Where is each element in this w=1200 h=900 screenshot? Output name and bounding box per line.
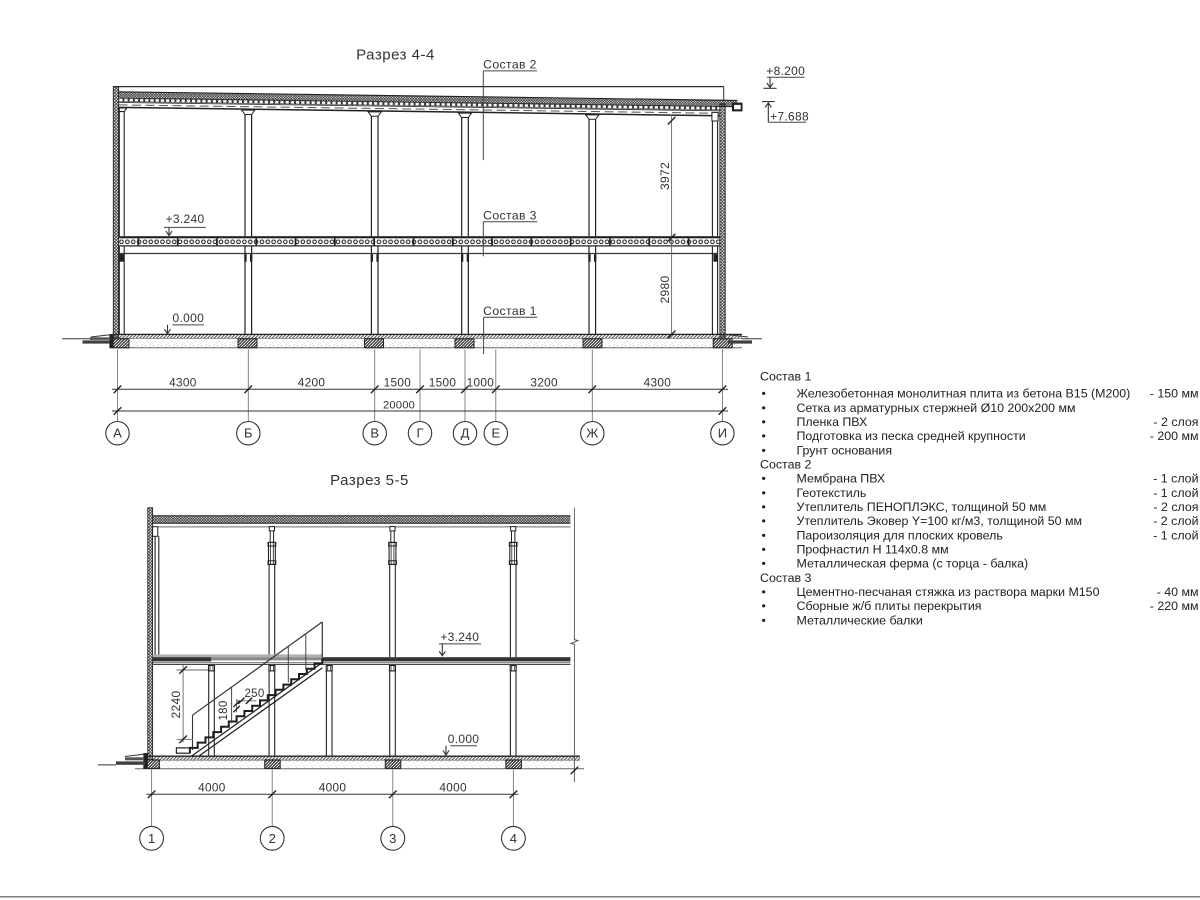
svg-text:•: • xyxy=(762,500,766,514)
svg-text:•: • xyxy=(762,585,766,599)
svg-text:3: 3 xyxy=(389,831,396,846)
svg-text:Цементно-песчаная стяжка из ра: Цементно-песчаная стяжка из раствора мар… xyxy=(797,585,1100,599)
svg-text:Утеплитель ПЕНОПЛЭКС, толщиной: Утеплитель ПЕНОПЛЭКС, толщиной 50 мм xyxy=(797,500,1047,514)
svg-text:•: • xyxy=(762,514,766,528)
svg-text:Железобетонная монолитная плит: Железобетонная монолитная плита из бетон… xyxy=(797,387,1131,401)
svg-text:Б: Б xyxy=(244,426,253,441)
svg-text:•: • xyxy=(762,401,766,415)
svg-text:•: • xyxy=(762,486,766,500)
svg-text:Состав 2: Состав 2 xyxy=(483,57,537,71)
svg-text:4200: 4200 xyxy=(298,376,326,390)
svg-text:•: • xyxy=(762,472,766,486)
svg-text:Мембрана ПВХ: Мембрана ПВХ xyxy=(797,472,886,486)
svg-text:•: • xyxy=(762,387,766,401)
svg-text:1500: 1500 xyxy=(384,376,412,390)
svg-text:20000: 20000 xyxy=(383,399,415,411)
svg-text:•: • xyxy=(762,543,766,557)
svg-text:Металлическая ферма (с торца -: Металлическая ферма (с торца - балка) xyxy=(797,557,1029,571)
svg-text:А: А xyxy=(113,426,122,441)
svg-text:- 1 слой: - 1 слой xyxy=(1153,472,1198,486)
svg-text:Грунт основания: Грунт основания xyxy=(797,443,893,457)
svg-text:•: • xyxy=(762,557,766,571)
svg-text:4000: 4000 xyxy=(439,781,467,795)
svg-text:Состав 3: Состав 3 xyxy=(760,571,811,585)
svg-text:Сетка из арматурных стержней Ø: Сетка из арматурных стержней Ø10 200х200… xyxy=(797,401,1076,415)
svg-text:Д: Д xyxy=(461,426,470,441)
svg-text:- 1 слой: - 1 слой xyxy=(1153,528,1198,542)
svg-text:3200: 3200 xyxy=(530,376,558,390)
svg-text:•: • xyxy=(762,613,766,627)
svg-text:И: И xyxy=(718,426,727,441)
svg-text:2240: 2240 xyxy=(169,691,183,719)
svg-text:- 2 слоя: - 2 слоя xyxy=(1153,415,1198,429)
svg-text:4000: 4000 xyxy=(198,781,226,795)
svg-text:4300: 4300 xyxy=(644,376,672,390)
svg-text:0.000: 0.000 xyxy=(448,732,480,746)
svg-text:Геотекстиль: Геотекстиль xyxy=(797,486,867,500)
svg-text:•: • xyxy=(762,429,766,443)
svg-text:+3.240: +3.240 xyxy=(440,630,479,644)
svg-text:Пленка ПВХ: Пленка ПВХ xyxy=(797,415,868,429)
svg-text:4: 4 xyxy=(510,831,517,846)
svg-text:•: • xyxy=(762,599,766,613)
svg-text:- 1 слой: - 1 слой xyxy=(1153,486,1198,500)
svg-text:Профнастил Н 114х0.8 мм: Профнастил Н 114х0.8 мм xyxy=(797,543,949,557)
svg-text:+3.240: +3.240 xyxy=(166,212,205,226)
svg-text:- 220 мм: - 220 мм xyxy=(1150,599,1199,613)
svg-text:Г: Г xyxy=(416,426,423,441)
svg-text:Разрез 5-5: Разрез 5-5 xyxy=(330,472,409,489)
svg-text:Пароизоляция для плоских крове: Пароизоляция для плоских кровель xyxy=(797,528,1003,542)
svg-text:Состав 3: Состав 3 xyxy=(483,208,537,222)
svg-text:- 2 слоя: - 2 слоя xyxy=(1153,500,1198,514)
svg-text:- 40 мм: - 40 мм xyxy=(1157,585,1199,599)
svg-text:4300: 4300 xyxy=(169,376,197,390)
svg-text:Состав 1: Состав 1 xyxy=(483,304,537,318)
svg-text:0.000: 0.000 xyxy=(173,311,205,325)
svg-text:В: В xyxy=(370,426,379,441)
svg-text:- 150 мм: - 150 мм xyxy=(1150,387,1199,401)
svg-text:Состав 1: Состав 1 xyxy=(760,369,811,383)
svg-text:2: 2 xyxy=(269,831,276,846)
svg-text:Сборные ж/б плиты перекрытия: Сборные ж/б плиты перекрытия xyxy=(797,599,982,613)
svg-text:Разрез 4-4: Разрез 4-4 xyxy=(356,47,435,64)
svg-text:1: 1 xyxy=(148,831,155,846)
svg-text:3972: 3972 xyxy=(658,162,672,190)
svg-text:Е: Е xyxy=(491,426,500,441)
svg-text:Утеплитель Эковер Y=100 кг/м3,: Утеплитель Эковер Y=100 кг/м3, толщиной … xyxy=(797,514,1082,528)
svg-text:1000: 1000 xyxy=(467,376,495,390)
svg-text:2980: 2980 xyxy=(658,276,672,304)
svg-text:+7.688: +7.688 xyxy=(770,109,809,123)
svg-text:•: • xyxy=(762,528,766,542)
svg-text:Ж: Ж xyxy=(586,426,598,441)
svg-text:- 200 мм: - 200 мм xyxy=(1150,429,1199,443)
svg-text:Подготовка из песка средней кр: Подготовка из песка средней крупности xyxy=(797,429,1026,443)
svg-text:180: 180 xyxy=(218,700,230,720)
svg-text:Металлические балки: Металлические балки xyxy=(797,613,923,627)
svg-text:+8.200: +8.200 xyxy=(766,64,805,78)
svg-text:Состав 2: Состав 2 xyxy=(760,458,811,472)
svg-text:•: • xyxy=(762,415,766,429)
svg-text:- 2 слой: - 2 слой xyxy=(1153,514,1198,528)
svg-text:250: 250 xyxy=(244,688,264,700)
svg-text:4000: 4000 xyxy=(319,781,347,795)
svg-text:1500: 1500 xyxy=(429,376,457,390)
svg-text:•: • xyxy=(762,443,766,457)
